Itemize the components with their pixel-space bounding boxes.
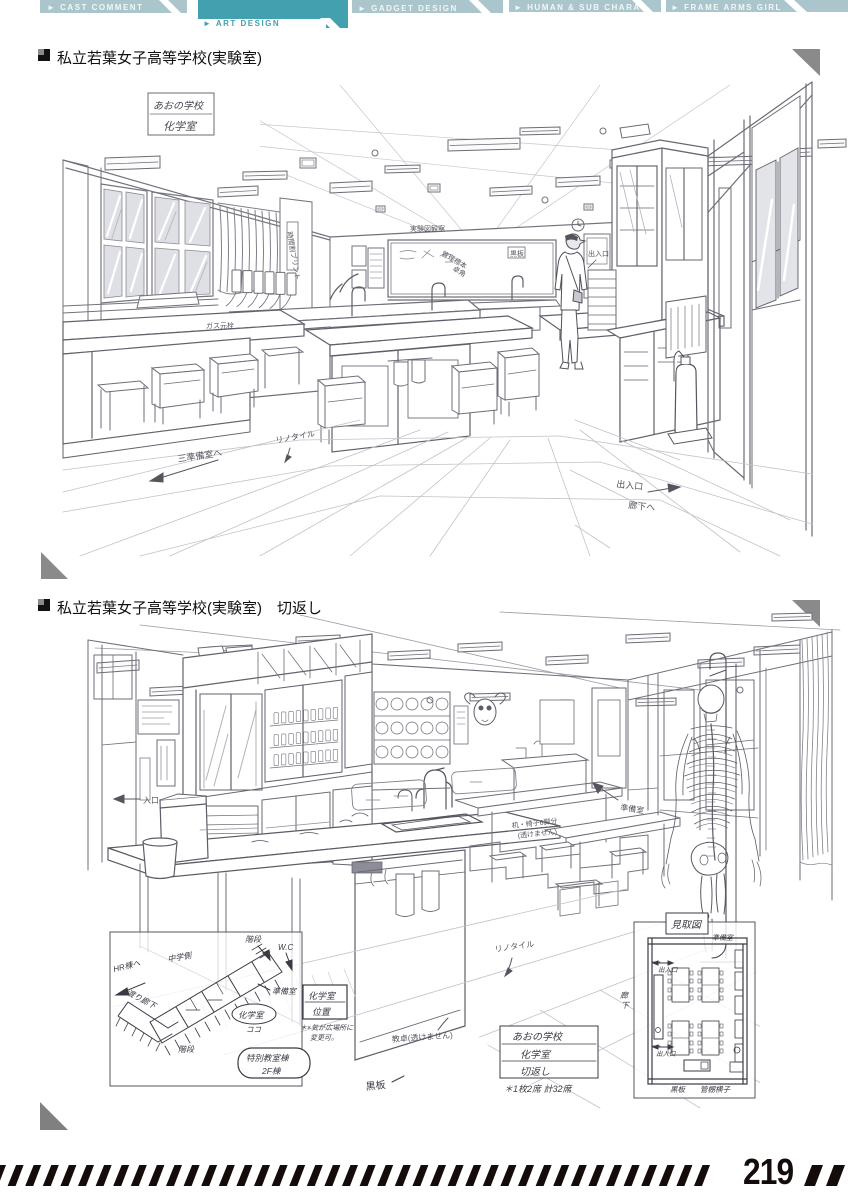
- svg-text:切返し: 切返し: [520, 1066, 550, 1078]
- svg-text:実験図観察: 実験図観察: [410, 224, 445, 233]
- svg-text:管棚横子: 管棚横子: [700, 1085, 730, 1094]
- svg-text:下: 下: [621, 1001, 631, 1010]
- svg-text:化学室: 化学室: [308, 991, 337, 1001]
- svg-text:2F棟: 2F棟: [261, 1066, 282, 1076]
- svg-text:ココ: ココ: [246, 1025, 261, 1034]
- svg-text:化学室: 化学室: [163, 120, 198, 133]
- svg-text:リノタイル: リノタイル: [494, 940, 535, 954]
- svg-text:リノタイル: リノタイル: [275, 429, 316, 445]
- svg-text:出入口: 出入口: [656, 1050, 676, 1058]
- svg-text:ガス元栓: ガス元栓: [206, 321, 234, 330]
- svg-text:出入口: 出入口: [658, 966, 678, 974]
- svg-text:入口: 入口: [143, 796, 159, 805]
- svg-text:出入口: 出入口: [588, 249, 609, 258]
- svg-text:階段: 階段: [178, 1045, 195, 1054]
- svg-text:黒板: 黒板: [510, 249, 524, 258]
- svg-text:準備室: 準備室: [712, 934, 734, 942]
- svg-text:W.C: W.C: [278, 943, 293, 952]
- svg-text:黒板: 黒板: [365, 1078, 386, 1093]
- svg-text:位置: 位置: [312, 1007, 331, 1017]
- svg-text:見取図: 見取図: [671, 919, 703, 931]
- svg-text:準備室: 準備室: [272, 987, 297, 996]
- svg-text:あおの学校: あおの学校: [512, 1031, 564, 1043]
- svg-text:化学室: 化学室: [520, 1049, 552, 1061]
- svg-text:階段: 階段: [245, 935, 262, 944]
- svg-text:特別教室棟: 特別教室棟: [246, 1053, 290, 1063]
- svg-text:三準備室へ: 三準備室へ: [177, 447, 223, 464]
- svg-text:廊下へ: 廊下へ: [628, 499, 656, 513]
- svg-text:あおの学校: あおの学校: [153, 100, 205, 112]
- svg-text:＊×気が広場所に: ＊×気が広場所に: [300, 1024, 354, 1032]
- svg-text:出入口: 出入口: [616, 478, 644, 492]
- svg-text:廊: 廊: [620, 991, 630, 1000]
- svg-text:準備室: 準備室: [620, 802, 645, 815]
- svg-text:黒板: 黒板: [670, 1085, 686, 1094]
- svg-text:変更可。: 変更可。: [310, 1034, 338, 1042]
- svg-text:化学室: 化学室: [238, 1010, 265, 1020]
- svg-text:＊1枚2席 計32席: ＊1枚2席 計32席: [504, 1084, 574, 1094]
